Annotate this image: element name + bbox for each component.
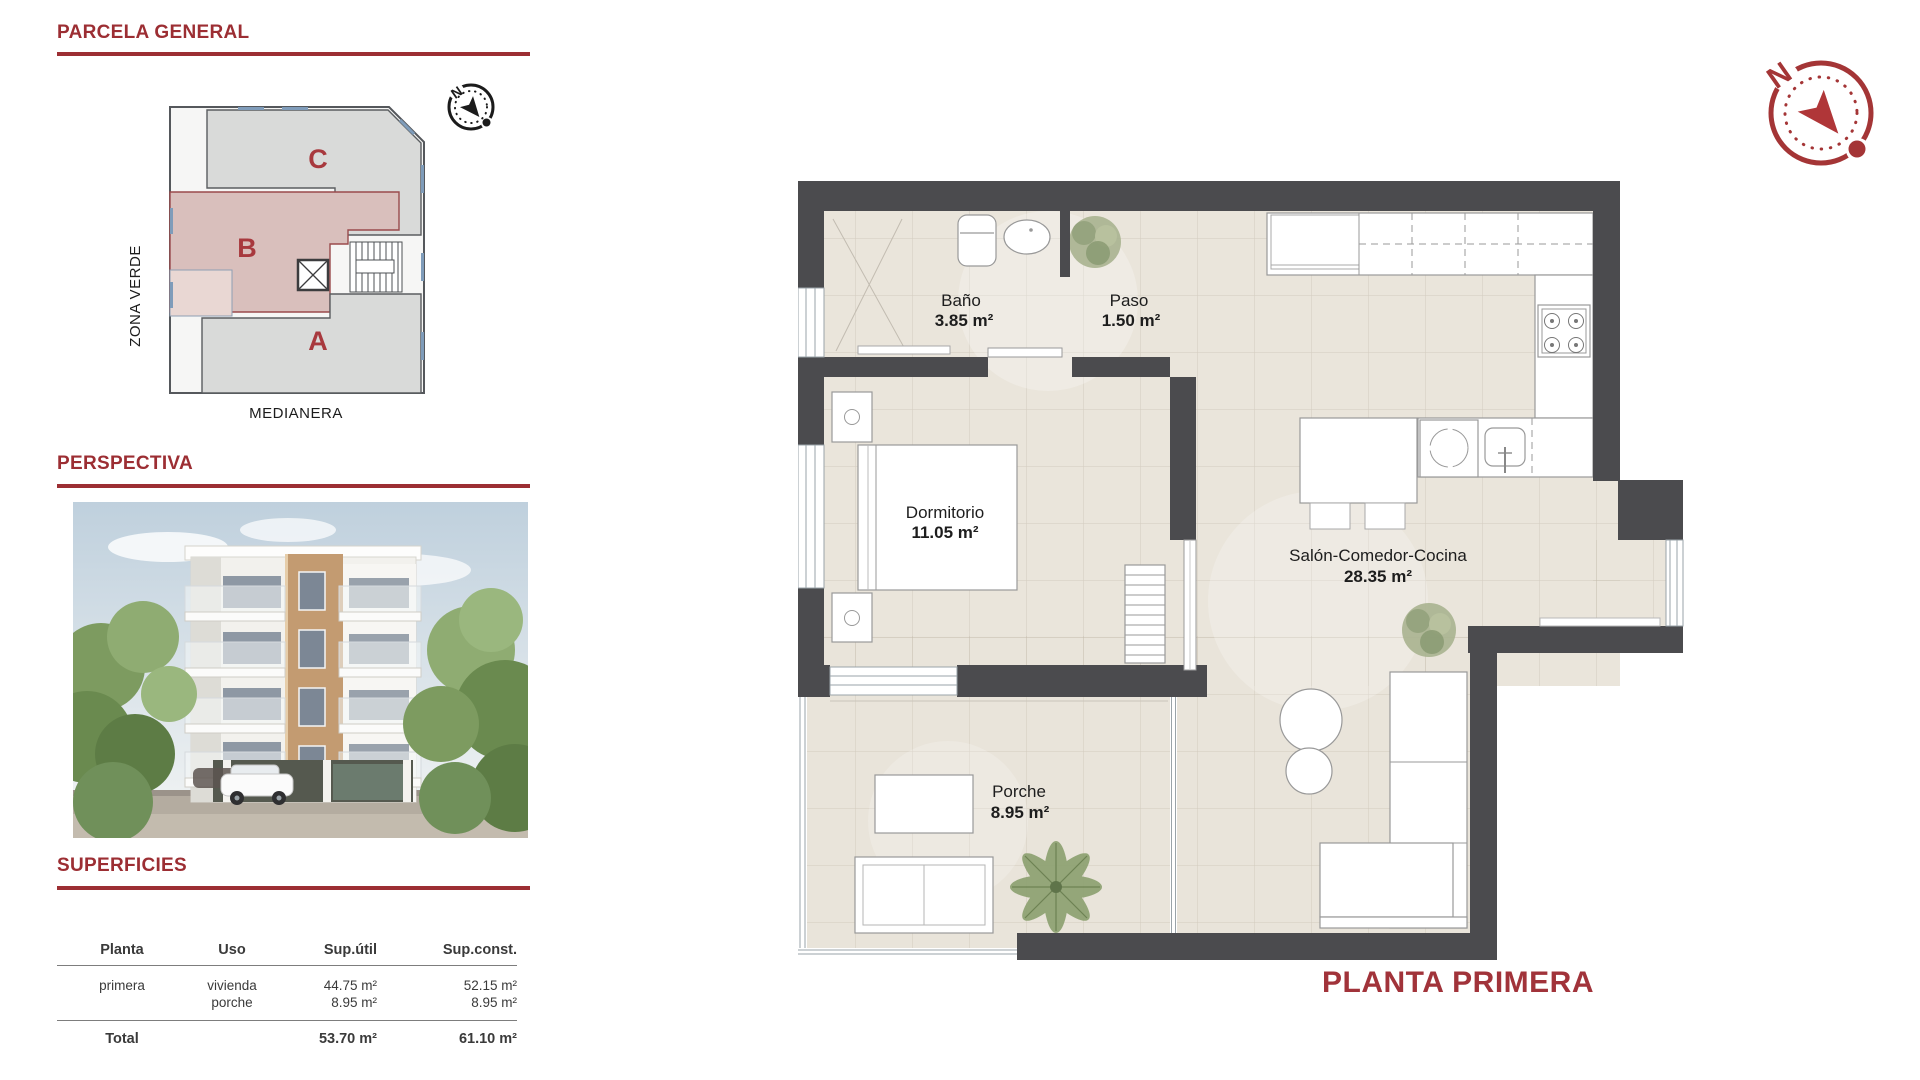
plant <box>1402 603 1456 657</box>
coffee-table <box>875 775 973 833</box>
elevator-shaft <box>298 260 328 290</box>
room-area-porche: 8.95 m² <box>991 803 1050 822</box>
room-label-dormitorio: Dormitorio <box>906 503 984 522</box>
zona-verde-label: ZONA VERDE <box>127 245 144 347</box>
const-porche: 8.95 m² <box>377 994 517 1011</box>
room-area-salon: 28.35 m² <box>1344 567 1412 586</box>
room-area-dormitorio: 11.05 m² <box>911 523 978 542</box>
col-planta: Planta <box>57 942 187 965</box>
zone-b-label: B <box>237 233 257 263</box>
util-porche: 8.95 m² <box>277 994 377 1011</box>
total-const: 61.10 m² <box>377 1031 517 1047</box>
zone-b-terrace <box>170 270 232 316</box>
col-uso: Uso <box>187 942 277 965</box>
nightstand <box>832 593 872 642</box>
room-label-paso: Paso <box>1110 291 1149 310</box>
toilet <box>958 215 996 266</box>
palm-plant <box>1010 841 1102 933</box>
stairs <box>350 242 402 292</box>
washing-machine <box>1420 420 1478 477</box>
small-compass-icon: N <box>448 83 493 129</box>
kitchen-sink <box>1485 428 1525 473</box>
medianera-label: MEDIANERA <box>249 405 343 422</box>
building <box>185 546 421 802</box>
stove <box>1538 305 1590 357</box>
cell-sup-const: 52.15 m² 8.95 m² <box>377 977 517 1011</box>
uso-vivienda: vivienda <box>187 977 277 994</box>
const-vivienda: 52.15 m² <box>377 977 517 994</box>
table-header-row: Planta Uso Sup.útil Sup.const. <box>57 942 517 966</box>
room-area-paso: 1.50 m² <box>1102 311 1161 330</box>
radiator <box>1125 565 1165 663</box>
uso-porche: porche <box>187 994 277 1011</box>
total-label: Total <box>57 1031 187 1047</box>
parcela-rule <box>57 52 530 56</box>
zone-a-label: A <box>308 326 328 356</box>
page-title: PLANTA PRIMERA <box>1322 966 1572 1000</box>
superficies-rule <box>57 886 530 890</box>
perspectiva-rule <box>57 484 530 488</box>
col-sup-util: Sup.útil <box>277 942 377 965</box>
room-area-bano: 3.85 m² <box>935 311 994 330</box>
perspectiva-heading: PERSPECTIVA <box>57 453 193 475</box>
superficies-table: Planta Uso Sup.útil Sup.const. primera v… <box>57 942 517 1047</box>
bath-shelf <box>858 346 950 354</box>
room-label-bano: Baño <box>941 291 981 310</box>
col-sup-const: Sup.const. <box>377 942 517 965</box>
parcela-general-heading: PARCELA GENERAL <box>57 22 249 44</box>
site-plan: C B A ZONA VERDE MEDIANERA N <box>100 70 545 440</box>
table-row: primera vivienda porche 44.75 m² 8.95 m²… <box>57 966 517 1021</box>
big-compass-icon: N <box>1746 38 1896 188</box>
porch-sofa <box>855 857 993 933</box>
perspective-image <box>73 502 528 838</box>
svg-text:N: N <box>1761 56 1798 95</box>
cell-planta: primera <box>57 977 187 1011</box>
plant <box>1069 216 1121 268</box>
floor-plan: Baño 3.85 m² Paso 1.50 m² Dormitorio 11.… <box>798 181 1688 967</box>
room-label-porche: Porche <box>992 782 1046 801</box>
bathroom-sink <box>1004 220 1050 254</box>
cell-uso: vivienda porche <box>187 977 277 1011</box>
util-vivienda: 44.75 m² <box>277 977 377 994</box>
total-util: 53.70 m² <box>277 1031 377 1047</box>
cell-sup-util: 44.75 m² 8.95 m² <box>277 977 377 1011</box>
door-leaf <box>988 348 1062 357</box>
plan-sheet: PARCELA GENERAL C B <box>0 0 1920 1080</box>
room-label-salon: Salón-Comedor-Cocina <box>1289 546 1467 565</box>
nightstand <box>832 392 872 442</box>
table-total-row: Total 53.70 m² 61.10 m² <box>57 1021 517 1047</box>
superficies-heading: SUPERFICIES <box>57 855 187 877</box>
zone-c-label: C <box>308 144 328 174</box>
